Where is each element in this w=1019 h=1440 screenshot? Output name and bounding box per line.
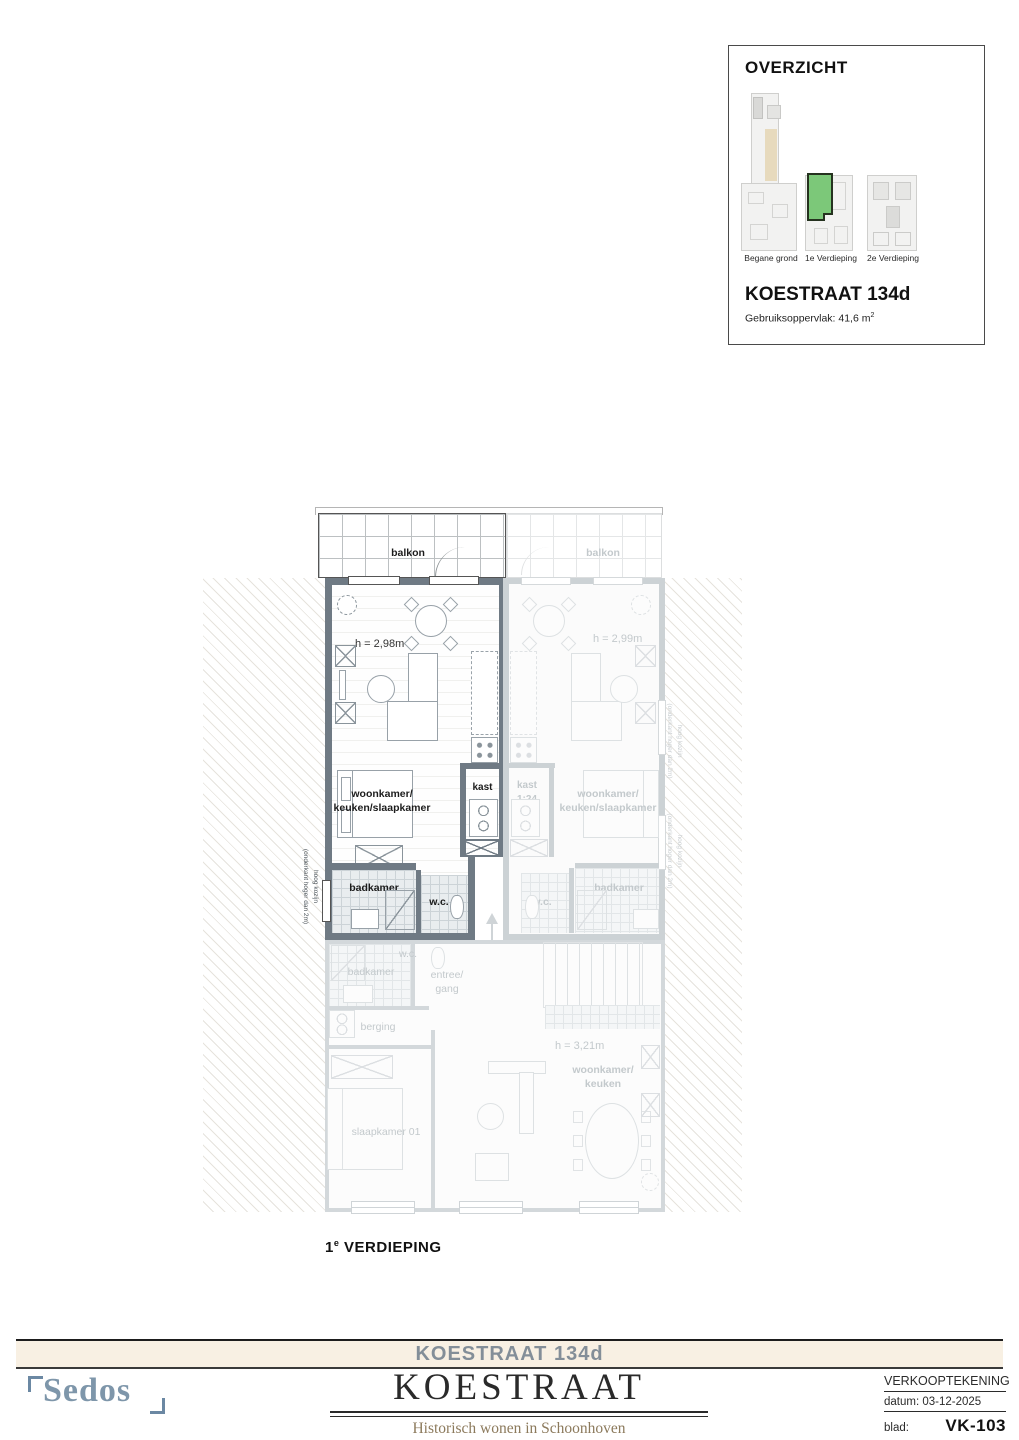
stove-symbol-faded [510, 737, 537, 763]
radiator-symbol [339, 670, 346, 700]
thumbnail-label-1e-verdieping: 1e Verdieping [803, 253, 859, 263]
ceiling-height-adjacent: h = 2,99m [593, 633, 642, 645]
armchair-symbol-lower [477, 1103, 504, 1130]
mini-plan-room [873, 232, 889, 246]
cabinet-symbol [335, 645, 356, 667]
dining-chair-symbol [641, 1135, 651, 1147]
tv-cabinet-symbol-lower [475, 1153, 509, 1181]
wc-label-lower: w.c. [391, 947, 425, 961]
bedroom-wall [329, 1045, 433, 1049]
sedos-logo: Sedos [28, 1372, 178, 1428]
dining-chair-symbol [573, 1111, 583, 1123]
mini-plan-room [814, 228, 828, 244]
stair-arrow-head [486, 913, 498, 924]
sink-symbol [351, 909, 379, 929]
floor-plan: balkon balkon h = 2,98m [203, 505, 743, 1215]
address-bar: KOESTRAAT 134d [16, 1339, 1003, 1369]
address-bar-text: KOESTRAAT 134d [16, 1341, 1003, 1368]
brand-name: Sedos [43, 1372, 131, 1410]
room-label-active: woonkamer/ keuken/slaapkamer [312, 787, 452, 815]
cabinet-symbol [335, 702, 356, 724]
room-label-line1: woonkamer/ [538, 787, 678, 801]
project-subtitle: Historisch wonen in Schoonhoven [330, 1420, 708, 1438]
void-wall [468, 857, 475, 940]
project-title: KOESTRAAT [330, 1366, 708, 1409]
sheet-number: VK-103 [945, 1416, 1006, 1436]
window-bottom [459, 1201, 523, 1214]
overview-title: OVERZICHT [745, 58, 848, 78]
bedroom-wall [431, 1030, 435, 1208]
kast-wall-faded [549, 763, 554, 857]
appliance-symbol [469, 799, 498, 837]
shower-symbol-faded [577, 890, 607, 930]
mini-plan-room [886, 206, 900, 228]
room-label-line2: keuken [548, 1077, 658, 1091]
sheet-number-row: blad: VK-103 [884, 1412, 1006, 1436]
mini-plan-room [895, 232, 911, 246]
toilet-symbol [450, 895, 464, 919]
table-symbol [415, 605, 447, 637]
shower-symbol [385, 890, 415, 930]
sink-symbol-lower [343, 985, 373, 1003]
caption-rest: VERDIEPING [339, 1239, 441, 1256]
floor-caption: 1e VERDIEPING [325, 1238, 442, 1256]
mini-plan-room [748, 192, 764, 204]
wardrobe-symbol-lower [331, 1055, 393, 1079]
window-note-line1: hoog kozijn [310, 838, 320, 935]
thumbnail-begane-grond [741, 93, 801, 251]
mini-plan-room [750, 224, 768, 240]
area-sup: 2 [870, 312, 874, 319]
ceiling-height-active: h = 2,98m [355, 638, 404, 650]
balcony-faded-label: balkon [558, 546, 648, 560]
overview-area-label: Gebruiksoppervlak: 41,6 m2 [745, 312, 874, 325]
balcony-active-label: balkon [363, 546, 453, 560]
storage-label-lower: berging [343, 1020, 413, 1034]
bathroom-label-lower: badkamer [331, 965, 411, 979]
toilet-symbol-lower [431, 947, 445, 969]
hall-line2: gang [415, 982, 479, 996]
toilet-symbol-faded [525, 895, 539, 919]
kitchen-cabinets-symbol [471, 651, 498, 735]
sofa-symbol [387, 701, 438, 741]
overview-panel: OVERZICHT [728, 45, 985, 345]
rug-symbol [367, 675, 395, 703]
stove-symbol [471, 737, 498, 763]
mini-plan-room [895, 182, 911, 200]
sofa-symbol-lower [488, 1061, 546, 1074]
date-label: datum: [884, 1396, 919, 1408]
sofa-symbol-lower [519, 1072, 534, 1134]
window-bottom [579, 1201, 639, 1214]
plant-symbol-lower [641, 1173, 659, 1191]
caption-num: 1 [325, 1239, 334, 1256]
dining-chair-symbol [641, 1159, 651, 1171]
sink-symbol-faded [633, 909, 659, 929]
overview-property-title: KOESTRAAT 134d [745, 284, 910, 306]
mini-plan-accent [765, 129, 777, 181]
window-active-top [348, 576, 400, 585]
thumbnail-label-2e-verdieping: 2e Verdieping [863, 253, 923, 263]
table-symbol-faded [533, 605, 565, 637]
hall-label-lower: entree/ gang [415, 968, 479, 996]
window-note-line2: (onderkant hoger dan 2m) [665, 695, 675, 787]
title-rule [330, 1411, 708, 1417]
window-note-line1: hoog kozijn [674, 695, 684, 787]
window-note-active: hoog kozijn (onderkant hoger dan 2m) [301, 838, 321, 935]
window-note-adjacent: hoog kozijn (onderkant hoger dan 2m) [665, 695, 685, 787]
mini-plan-lower [741, 183, 797, 251]
ceiling-height-lower: h = 3,21m [555, 1040, 604, 1052]
dining-chair-symbol [573, 1135, 583, 1147]
project-title-block: KOESTRAAT Historisch wonen in Schoonhove… [330, 1366, 708, 1438]
kast-label-active: kast [466, 781, 499, 795]
mini-plan-detail [753, 97, 763, 119]
cabinet-symbol-faded [635, 702, 656, 724]
wc-wall-faded [569, 868, 574, 933]
area-text: Gebruiksoppervlak: 41,6 m [745, 313, 870, 325]
window-active-left [322, 880, 331, 922]
window-faded-top [593, 577, 643, 585]
plant-symbol-faded [631, 595, 651, 615]
logo-bracket-bottomright [150, 1398, 165, 1414]
hall-line1: entree/ [415, 968, 479, 982]
kitchen-counter-lower [545, 1005, 660, 1029]
date-value: 03-12-2025 [922, 1396, 981, 1408]
shaft-symbol-faded [510, 839, 548, 857]
sofa-symbol-faded [571, 653, 601, 703]
room-label-line2: keuken/slaapkamer [312, 801, 452, 815]
room-label-adjacent: woonkamer/ keuken/slaapkamer [538, 787, 678, 815]
thumbnail-1e-verdieping [805, 173, 855, 251]
appliance-symbol-faded [511, 799, 540, 837]
window-note-line1: hoog kozijn [674, 805, 684, 897]
plant-symbol [337, 595, 357, 615]
mini-plan-room [772, 204, 788, 218]
room-label-line2: keuken/slaapkamer [538, 801, 678, 815]
highlighted-unit-shape [807, 173, 833, 215]
logo-bracket-topleft [28, 1376, 43, 1392]
mini-plan-room [873, 182, 889, 200]
mini-plan-shape [867, 175, 917, 251]
bedroom-label-lower: slaapkamer 01 [341, 1125, 431, 1139]
sofa-symbol-faded [571, 701, 622, 741]
kast-line1: kast [507, 779, 547, 793]
cabinet-symbol-faded [635, 645, 656, 667]
cabinet-symbol-lower [641, 1045, 660, 1069]
rug-symbol-faded [610, 675, 638, 703]
drawing-sheet: OVERZICHT [0, 0, 1019, 1440]
shaft-symbol [462, 839, 500, 857]
thumbnail-2e-verdieping [867, 173, 919, 251]
cabinet-symbol-lower [641, 1093, 660, 1117]
kitchen-cabinets-faded [510, 651, 537, 735]
window-note-line2: (onderkant hoger dan 2m) [665, 805, 675, 897]
mini-plan-room [834, 226, 848, 244]
room-label-line1: woonkamer/ [312, 787, 452, 801]
mini-plan-detail [767, 105, 781, 119]
kast-wall [460, 763, 506, 769]
sheet-label: blad: [884, 1422, 909, 1434]
staircase-symbol [543, 942, 643, 1008]
window-bottom [351, 1201, 415, 1214]
window-active-top [429, 576, 479, 585]
bathroom-wall [332, 863, 416, 870]
sofa-symbol [408, 653, 438, 703]
drawing-type: VERKOOPTEKENING [884, 1374, 1006, 1392]
window-faded-top [521, 577, 571, 585]
drawing-info-block: VERKOOPTEKENING datum: 03-12-2025 blad: … [884, 1374, 1006, 1436]
window-note-adjacent: hoog kozijn (onderkant hoger dan 2m) [665, 805, 685, 897]
drawing-date: datum: 03-12-2025 [884, 1392, 1006, 1412]
highlighted-unit-notch [807, 213, 825, 221]
window-note-line2: (onderkant hoger dan 2m) [301, 838, 311, 935]
thumbnail-label-begane-grond: Begane grond [737, 253, 805, 263]
dining-table-symbol-lower [585, 1103, 639, 1179]
dining-chair-symbol [573, 1159, 583, 1171]
